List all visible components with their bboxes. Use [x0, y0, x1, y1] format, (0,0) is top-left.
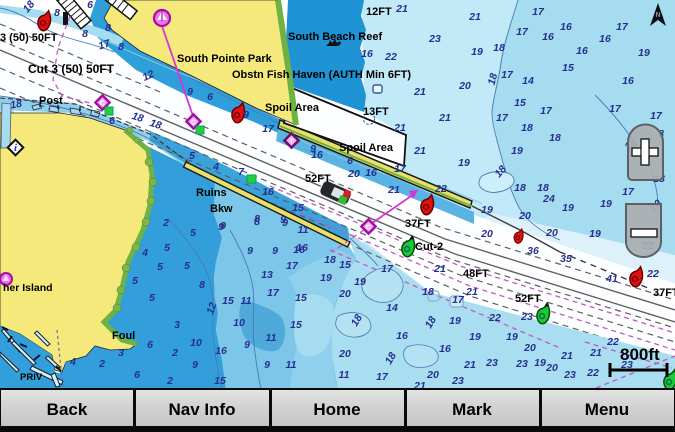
svg-text:21: 21	[560, 350, 573, 362]
svg-text:Ruins: Ruins	[196, 187, 227, 199]
svg-text:3: 3	[174, 319, 180, 331]
svg-text:5: 5	[132, 275, 138, 287]
svg-text:19: 19	[562, 202, 574, 214]
svg-text:20: 20	[480, 228, 493, 240]
svg-text:17: 17	[452, 294, 465, 306]
svg-text:19: 19	[589, 228, 601, 240]
svg-text:15: 15	[214, 375, 226, 387]
svg-text:4: 4	[141, 247, 148, 259]
svg-text:36: 36	[527, 245, 539, 257]
svg-text:21: 21	[589, 347, 602, 359]
svg-text:18: 18	[422, 286, 434, 298]
svg-text:22: 22	[384, 51, 397, 63]
svg-text:21: 21	[393, 122, 406, 134]
svg-text:8: 8	[199, 279, 205, 291]
svg-text:20: 20	[523, 342, 536, 354]
svg-text:17: 17	[376, 371, 389, 383]
svg-text:20: 20	[338, 348, 351, 360]
svg-text:16: 16	[215, 345, 227, 357]
svg-text:17: 17	[622, 186, 635, 198]
svg-text:6: 6	[207, 91, 213, 103]
svg-text:Nav Info: Nav Info	[168, 400, 235, 419]
svg-text:20: 20	[545, 362, 558, 374]
svg-text:11: 11	[286, 359, 297, 371]
svg-text:14: 14	[522, 75, 534, 87]
svg-text:19: 19	[511, 145, 523, 157]
svg-text:17: 17	[516, 26, 529, 38]
svg-text:11: 11	[266, 332, 277, 344]
svg-text:15: 15	[290, 319, 302, 331]
svg-text:9: 9	[243, 109, 249, 121]
svg-text:17: 17	[262, 123, 275, 135]
svg-text:11: 11	[339, 369, 350, 381]
svg-text:20: 20	[458, 80, 471, 92]
svg-text:Home: Home	[313, 400, 360, 419]
svg-text:14: 14	[386, 302, 398, 314]
svg-text:N: N	[655, 12, 660, 19]
svg-text:16: 16	[542, 31, 554, 43]
svg-text:22: 22	[488, 312, 501, 324]
svg-text:24: 24	[542, 193, 555, 205]
svg-text:15: 15	[514, 97, 526, 109]
svg-text:5: 5	[149, 292, 155, 304]
svg-text:21: 21	[433, 263, 446, 275]
svg-text:800ft: 800ft	[620, 345, 660, 364]
svg-text:12FT: 12FT	[366, 6, 392, 18]
svg-text:17: 17	[501, 69, 514, 81]
svg-text:5: 5	[157, 261, 163, 273]
svg-text:South Pointe Park: South Pointe Park	[177, 53, 273, 65]
svg-text:18: 18	[521, 122, 533, 134]
svg-text:21: 21	[438, 112, 451, 124]
svg-text:19: 19	[469, 331, 481, 343]
svg-text:T: T	[289, 137, 294, 146]
svg-text:8: 8	[118, 41, 124, 53]
svg-text:19: 19	[534, 357, 546, 369]
svg-text:23: 23	[451, 375, 464, 387]
svg-text:23: 23	[563, 369, 576, 381]
svg-text:16: 16	[396, 330, 408, 342]
svg-text:Mark: Mark	[452, 400, 492, 419]
svg-text:Cut-2: Cut-2	[415, 241, 443, 253]
svg-text:20: 20	[545, 227, 558, 239]
svg-text:3 (50) 50FT: 3 (50) 50FT	[0, 32, 58, 44]
svg-text:Obstn Fish Haven (AUTH Min 6FT: Obstn Fish Haven (AUTH Min 6FT)	[232, 69, 411, 81]
svg-text:9: 9	[244, 339, 250, 351]
svg-text:21: 21	[413, 145, 426, 157]
svg-text:11: 11	[241, 295, 252, 307]
svg-text:6: 6	[134, 369, 140, 381]
svg-text:23: 23	[515, 358, 528, 370]
svg-text:17: 17	[532, 6, 545, 18]
svg-text:6: 6	[109, 115, 115, 127]
svg-text:48FT: 48FT	[463, 268, 489, 280]
svg-text:19: 19	[449, 315, 461, 327]
svg-text:15: 15	[562, 62, 574, 74]
svg-text:37FT: 37FT	[405, 218, 431, 230]
svg-text:15: 15	[292, 202, 304, 214]
svg-text:21: 21	[468, 11, 481, 23]
svg-text:8: 8	[105, 22, 111, 34]
svg-text:9: 9	[218, 221, 224, 233]
svg-text:9: 9	[247, 245, 253, 257]
svg-text:15: 15	[222, 295, 234, 307]
svg-text:22: 22	[646, 268, 659, 280]
svg-text:18: 18	[324, 254, 336, 266]
svg-text:2: 2	[98, 358, 105, 370]
svg-text:9: 9	[280, 214, 286, 226]
svg-text:35: 35	[560, 253, 572, 265]
svg-text:5: 5	[164, 242, 170, 254]
svg-text:Foul: Foul	[112, 330, 135, 342]
svg-text:20: 20	[518, 210, 531, 222]
svg-text:13FT: 13FT	[363, 106, 389, 118]
svg-text:5: 5	[189, 150, 195, 162]
svg-text:4: 4	[69, 356, 76, 368]
svg-text:13: 13	[261, 269, 273, 281]
svg-text:17: 17	[381, 263, 394, 275]
svg-text:16: 16	[311, 149, 323, 161]
svg-text:23: 23	[428, 33, 441, 45]
svg-text:16: 16	[599, 33, 611, 45]
svg-text:17: 17	[286, 260, 299, 272]
svg-text:18: 18	[549, 132, 561, 144]
svg-text:5: 5	[190, 227, 196, 239]
svg-text:16: 16	[262, 186, 274, 198]
svg-text:52FT: 52FT	[305, 173, 331, 185]
svg-text:52FT: 52FT	[515, 293, 541, 305]
svg-text:17: 17	[540, 105, 553, 117]
svg-text:17: 17	[609, 103, 622, 115]
svg-text:22: 22	[434, 183, 447, 195]
svg-text:Post: Post	[39, 95, 63, 107]
svg-text:16: 16	[439, 343, 451, 355]
svg-text:PRIV: PRIV	[20, 372, 43, 383]
svg-text:4: 4	[212, 161, 219, 173]
svg-text:19: 19	[458, 157, 470, 169]
svg-text:21: 21	[465, 286, 478, 298]
svg-text:21: 21	[413, 86, 426, 98]
svg-text:19: 19	[354, 276, 366, 288]
svg-text:18: 18	[537, 182, 549, 194]
svg-text:10: 10	[190, 337, 202, 349]
svg-text:C: C	[366, 223, 372, 232]
svg-text:C: C	[100, 99, 106, 108]
svg-text:16: 16	[560, 21, 572, 33]
svg-text:6: 6	[147, 339, 153, 351]
svg-text:17: 17	[616, 21, 629, 33]
svg-text:19: 19	[600, 198, 612, 210]
svg-text:17: 17	[394, 163, 407, 175]
svg-text:8: 8	[82, 28, 88, 40]
svg-text:9: 9	[272, 245, 278, 257]
svg-text:16: 16	[576, 45, 588, 57]
svg-text:16: 16	[361, 48, 373, 60]
svg-text:Cut 3 (50) 50FT: Cut 3 (50) 50FT	[28, 62, 115, 76]
svg-text:Bkw: Bkw	[210, 203, 233, 215]
svg-text:18: 18	[514, 182, 526, 194]
svg-text:Menu: Menu	[585, 400, 629, 419]
svg-text:17: 17	[650, 110, 663, 122]
svg-text:11: 11	[298, 224, 309, 236]
svg-text:41: 41	[605, 273, 618, 285]
svg-text:6: 6	[347, 155, 353, 167]
svg-text:19: 19	[471, 46, 483, 58]
svg-text:22: 22	[586, 367, 599, 379]
svg-text:2: 2	[162, 217, 169, 229]
svg-text:19: 19	[320, 272, 332, 284]
svg-text:her Island: her Island	[3, 282, 53, 294]
svg-text:16: 16	[622, 75, 634, 87]
svg-text:9: 9	[264, 359, 270, 371]
svg-text:8: 8	[254, 213, 260, 225]
svg-text:8: 8	[54, 7, 60, 19]
svg-text:19: 19	[506, 331, 518, 343]
svg-text:19: 19	[638, 47, 650, 59]
svg-text:20: 20	[347, 168, 360, 180]
svg-text:C: C	[191, 118, 197, 127]
svg-text:6: 6	[87, 0, 93, 11]
svg-text:3: 3	[118, 347, 124, 359]
svg-text:20: 20	[338, 288, 351, 300]
svg-text:37FT: 37FT	[653, 287, 675, 299]
svg-text:15: 15	[339, 259, 351, 271]
svg-text:Spoil Area: Spoil Area	[339, 142, 394, 154]
svg-text:19: 19	[481, 204, 493, 216]
svg-text:23: 23	[520, 311, 533, 323]
svg-text:2: 2	[166, 375, 173, 387]
svg-text:16: 16	[293, 244, 305, 256]
svg-text:16: 16	[365, 167, 377, 179]
svg-text:20: 20	[426, 369, 439, 381]
svg-text:21: 21	[387, 184, 400, 196]
svg-text:5: 5	[184, 260, 190, 272]
svg-text:9: 9	[187, 86, 193, 98]
svg-text:17: 17	[496, 112, 509, 124]
svg-text:15: 15	[295, 292, 307, 304]
svg-text:18: 18	[9, 98, 23, 112]
svg-text:10: 10	[233, 317, 245, 329]
svg-text:South Beach Reef: South Beach Reef	[288, 31, 382, 43]
svg-text:21: 21	[395, 3, 408, 15]
svg-text:9: 9	[192, 359, 198, 371]
svg-text:21: 21	[463, 359, 476, 371]
svg-text:Spoil Area: Spoil Area	[265, 102, 320, 114]
svg-text:17: 17	[267, 287, 280, 299]
svg-text:Back: Back	[47, 400, 88, 419]
svg-text:18: 18	[493, 42, 505, 54]
svg-text:23: 23	[485, 357, 498, 369]
svg-text:2: 2	[171, 347, 178, 359]
svg-text:22: 22	[606, 336, 619, 348]
